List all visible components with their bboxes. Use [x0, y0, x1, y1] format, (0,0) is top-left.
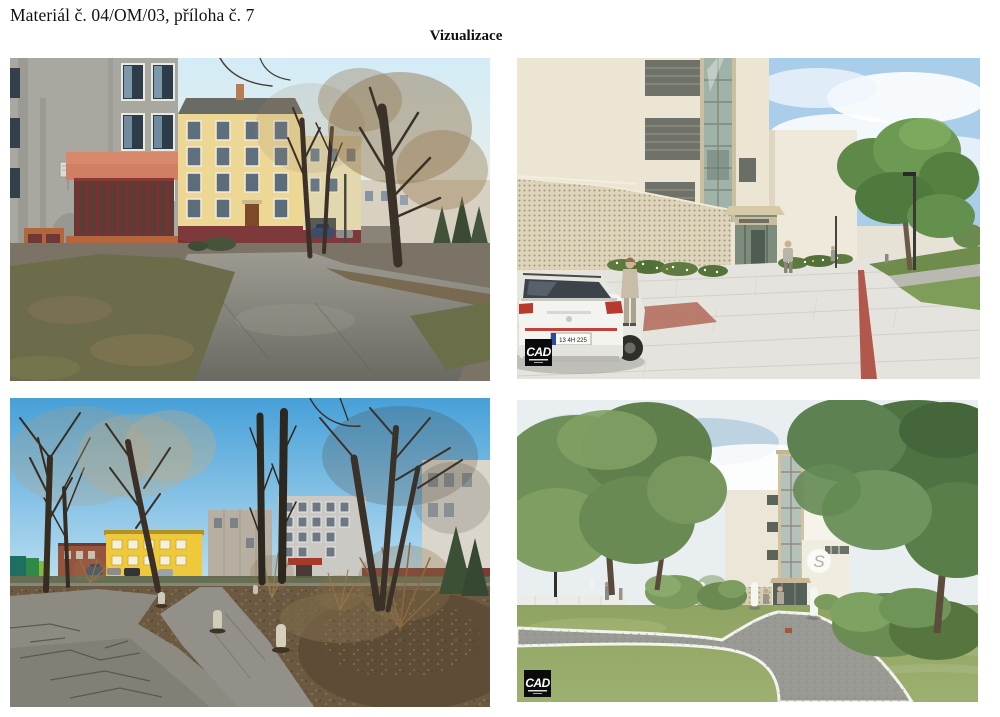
figure-render-new-park: S	[517, 400, 978, 702]
cad-logo-watermark: CAD	[524, 670, 551, 697]
page-title: Vizualizace	[0, 28, 932, 45]
render-new-park: S	[517, 400, 978, 702]
svg-text:13 4H 225: 13 4H 225	[559, 338, 587, 344]
photo-existing-courtyard	[10, 58, 490, 381]
main-building	[517, 58, 785, 274]
svg-text:CAD: CAD	[525, 676, 550, 690]
figure-photo-existing-park	[10, 398, 490, 707]
svg-text:CAD: CAD	[526, 345, 551, 359]
cad-logo-watermark: CAD	[525, 339, 552, 366]
glass-lift-shaft	[700, 58, 736, 222]
figure-photo-existing-courtyard	[10, 58, 490, 381]
photo-existing-park	[10, 398, 490, 707]
license-plate: 13 4H 225	[551, 333, 591, 345]
ground-and-paths	[10, 237, 490, 381]
render-new-entrance: 13 4H 225 CAD	[517, 58, 980, 379]
document-reference: Materiál č. 04/OM/03, příloha č. 7	[10, 5, 254, 26]
svg-text:S: S	[813, 552, 825, 571]
street-pole	[344, 174, 347, 248]
figure-render-new-entrance: 13 4H 225 CAD	[517, 58, 980, 379]
document-page: Materiál č. 04/OM/03, příloha č. 7 Vizua…	[0, 0, 1000, 717]
